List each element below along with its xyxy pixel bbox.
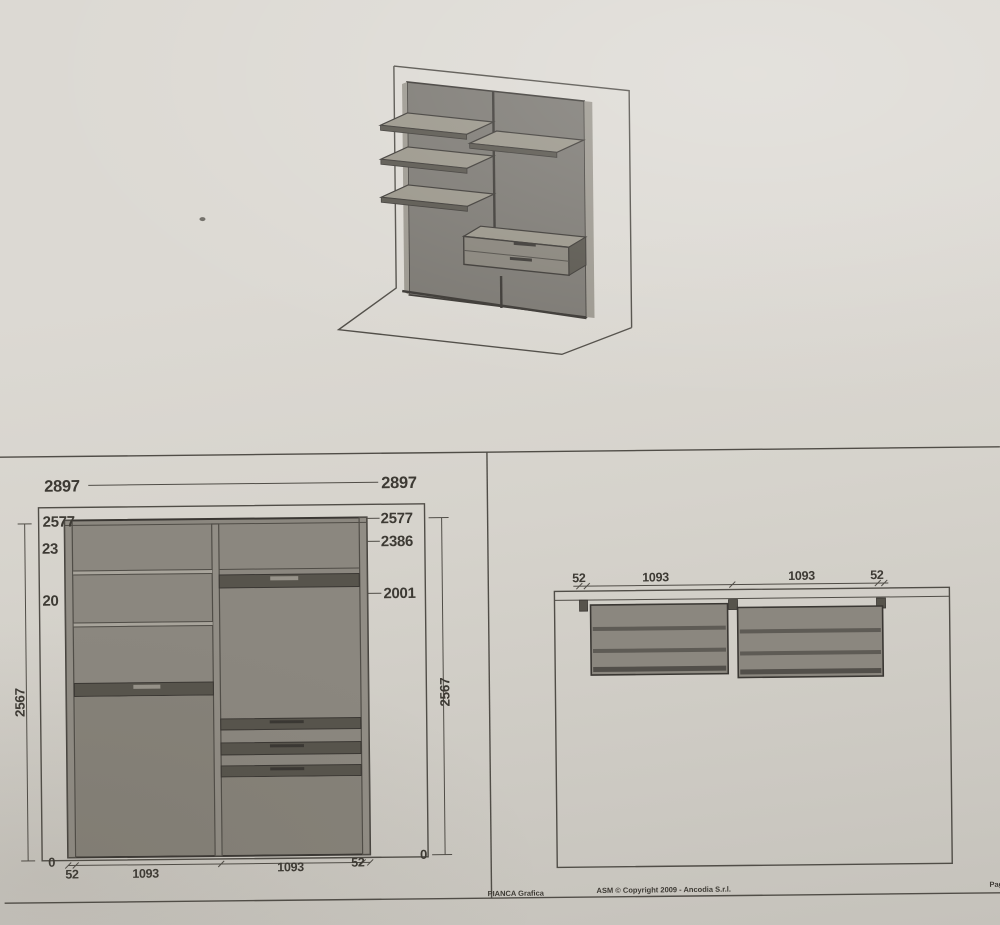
elevation-right-flap: [219, 573, 359, 587]
plan-left-panel: [579, 600, 587, 611]
drawing-canvas: 2897 2897 2577 23 20 2577 2386 2001 2567: [0, 0, 1000, 925]
plan-dims: 52 1093 1093 52: [572, 568, 888, 589]
elevation-zero-right: 0: [420, 847, 427, 862]
elevation-level-top-left: 2577: [43, 513, 75, 530]
elevation-level-low-left: 20: [42, 593, 58, 610]
photographed-drawing-page: 2897 2897 2577 23 20 2577 2386 2001 2567: [0, 0, 1000, 925]
plan-seg-1: 52: [572, 571, 586, 585]
elevation-dim-width-right: 2897: [381, 474, 417, 492]
footer-page-label: Pag: [989, 880, 1000, 889]
elevation-zero-left: 0: [48, 855, 55, 870]
elevation-height-left-label: 2567: [12, 688, 27, 717]
footer-brand: PIANCA Grafica: [487, 889, 544, 899]
elevation-level-mid-right: 2386: [381, 533, 413, 550]
plan-left-door: [591, 604, 729, 675]
plan-center-panel: [728, 600, 737, 610]
footer-copyright: ASM © Copyright 2009 - Ancodia S.r.l.: [596, 885, 731, 895]
vertical-divider: [487, 452, 492, 898]
elevation-drawer-3: [221, 764, 361, 776]
elevation-level-low-right: 2001: [383, 585, 415, 602]
elevation-dim-width-left: 2897: [44, 477, 80, 495]
horizontal-divider: [0, 447, 1000, 457]
plan-right-door: [738, 606, 884, 678]
elevation-drawer-1: [221, 717, 361, 729]
elevation-drawer-2: [221, 741, 361, 754]
elevation-width-dim-line: [88, 482, 378, 485]
plan-seg-3: 1093: [788, 569, 815, 583]
elevation-level-top-right: 2577: [381, 510, 413, 527]
iso-shelves: [380, 112, 494, 212]
elevation-bottom-seg-1: 52: [65, 867, 79, 881]
elevation-left-flap: [74, 682, 213, 696]
plan-view: 52 1093 1093 52: [554, 567, 952, 867]
elevation-height-right-label: 2567: [437, 678, 452, 707]
plan-seg-4: 52: [870, 568, 884, 582]
plan-seg-2: 1093: [642, 570, 669, 584]
paper-speck: [199, 217, 205, 221]
elevation-bottom-seg-4: 52: [351, 855, 365, 869]
elevation-level-mid-left: 23: [42, 541, 58, 558]
iso-view: [198, 64, 632, 358]
elevation-bottom-seg-2: 1093: [132, 867, 159, 881]
elevation-height-dim-right: 2567: [429, 518, 455, 855]
elevation-bottom-seg-3: 1093: [277, 860, 304, 874]
elevation-right-flap-handle: [270, 576, 298, 580]
plan-wall-line: [554, 596, 949, 600]
elevation-left-flap-handle: [133, 685, 160, 689]
elevation-height-dim-left: 2567: [11, 524, 36, 861]
front-elevation: 2897 2897 2577 23 20 2577 2386 2001 2567: [10, 474, 454, 883]
iso-center-divider: [493, 91, 494, 234]
